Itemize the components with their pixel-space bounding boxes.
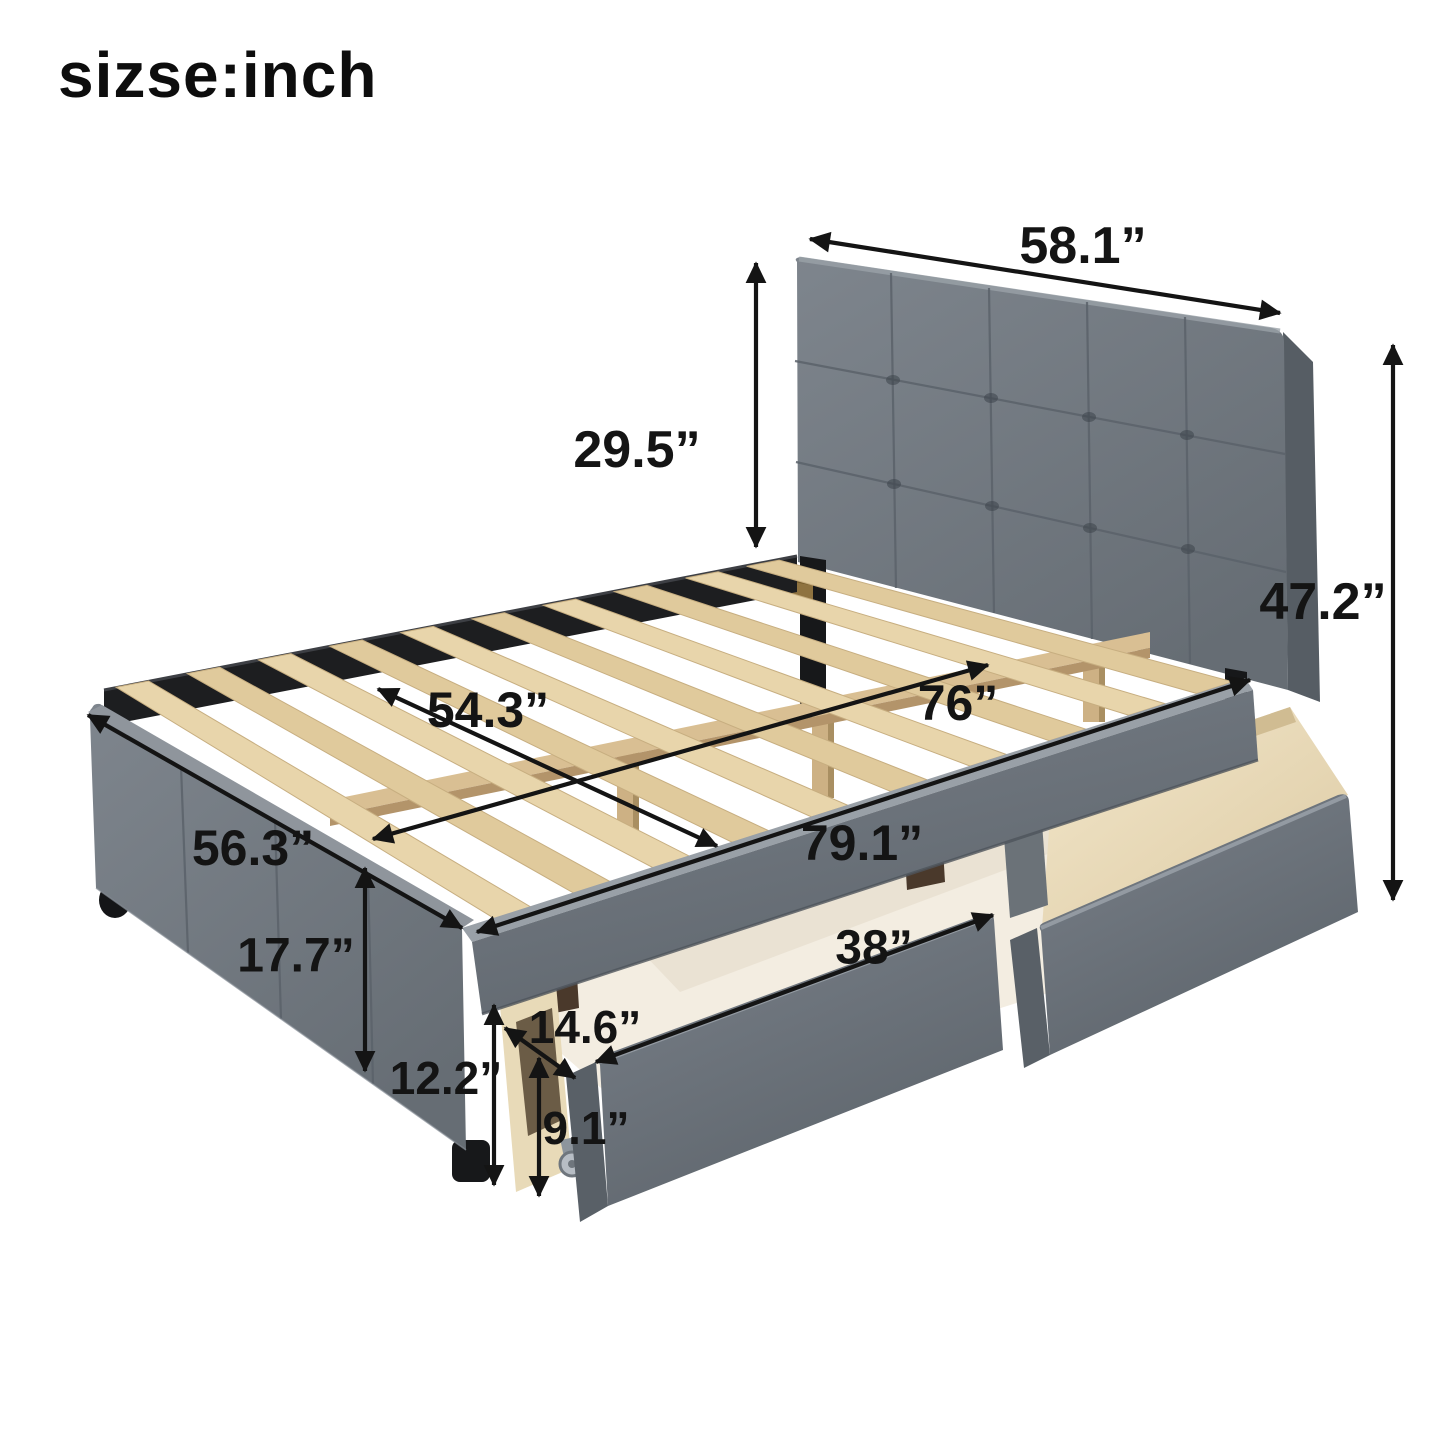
dimension-label: 9.1” bbox=[543, 1102, 630, 1154]
dimension-label: 29.5” bbox=[573, 421, 700, 479]
dimension-label: 79.1” bbox=[801, 815, 923, 871]
dimension-label: 58.1” bbox=[1019, 217, 1146, 275]
bed-illustration: 58.1”29.5”47.2”54.3”76”79.1”56.3”17.7”38… bbox=[0, 0, 1445, 1445]
headboard-side-face bbox=[1283, 332, 1320, 702]
dimension-label: 17.7” bbox=[237, 930, 354, 983]
dimension-diagram-page: sizse:inch bbox=[0, 0, 1445, 1445]
dimension-label: 56.3” bbox=[192, 820, 314, 876]
dimension-label: 38” bbox=[835, 922, 912, 975]
dimension-label: 47.2” bbox=[1259, 573, 1386, 631]
dimension-label: 14.6” bbox=[529, 1001, 642, 1053]
dimension-label: 76” bbox=[918, 675, 999, 731]
dimension-label: 12.2” bbox=[390, 1052, 503, 1104]
dimension-label: 54.3” bbox=[427, 682, 549, 738]
footboard-inner-leg bbox=[452, 1140, 490, 1182]
dimension-headboard-height: 29.5” bbox=[573, 263, 756, 547]
